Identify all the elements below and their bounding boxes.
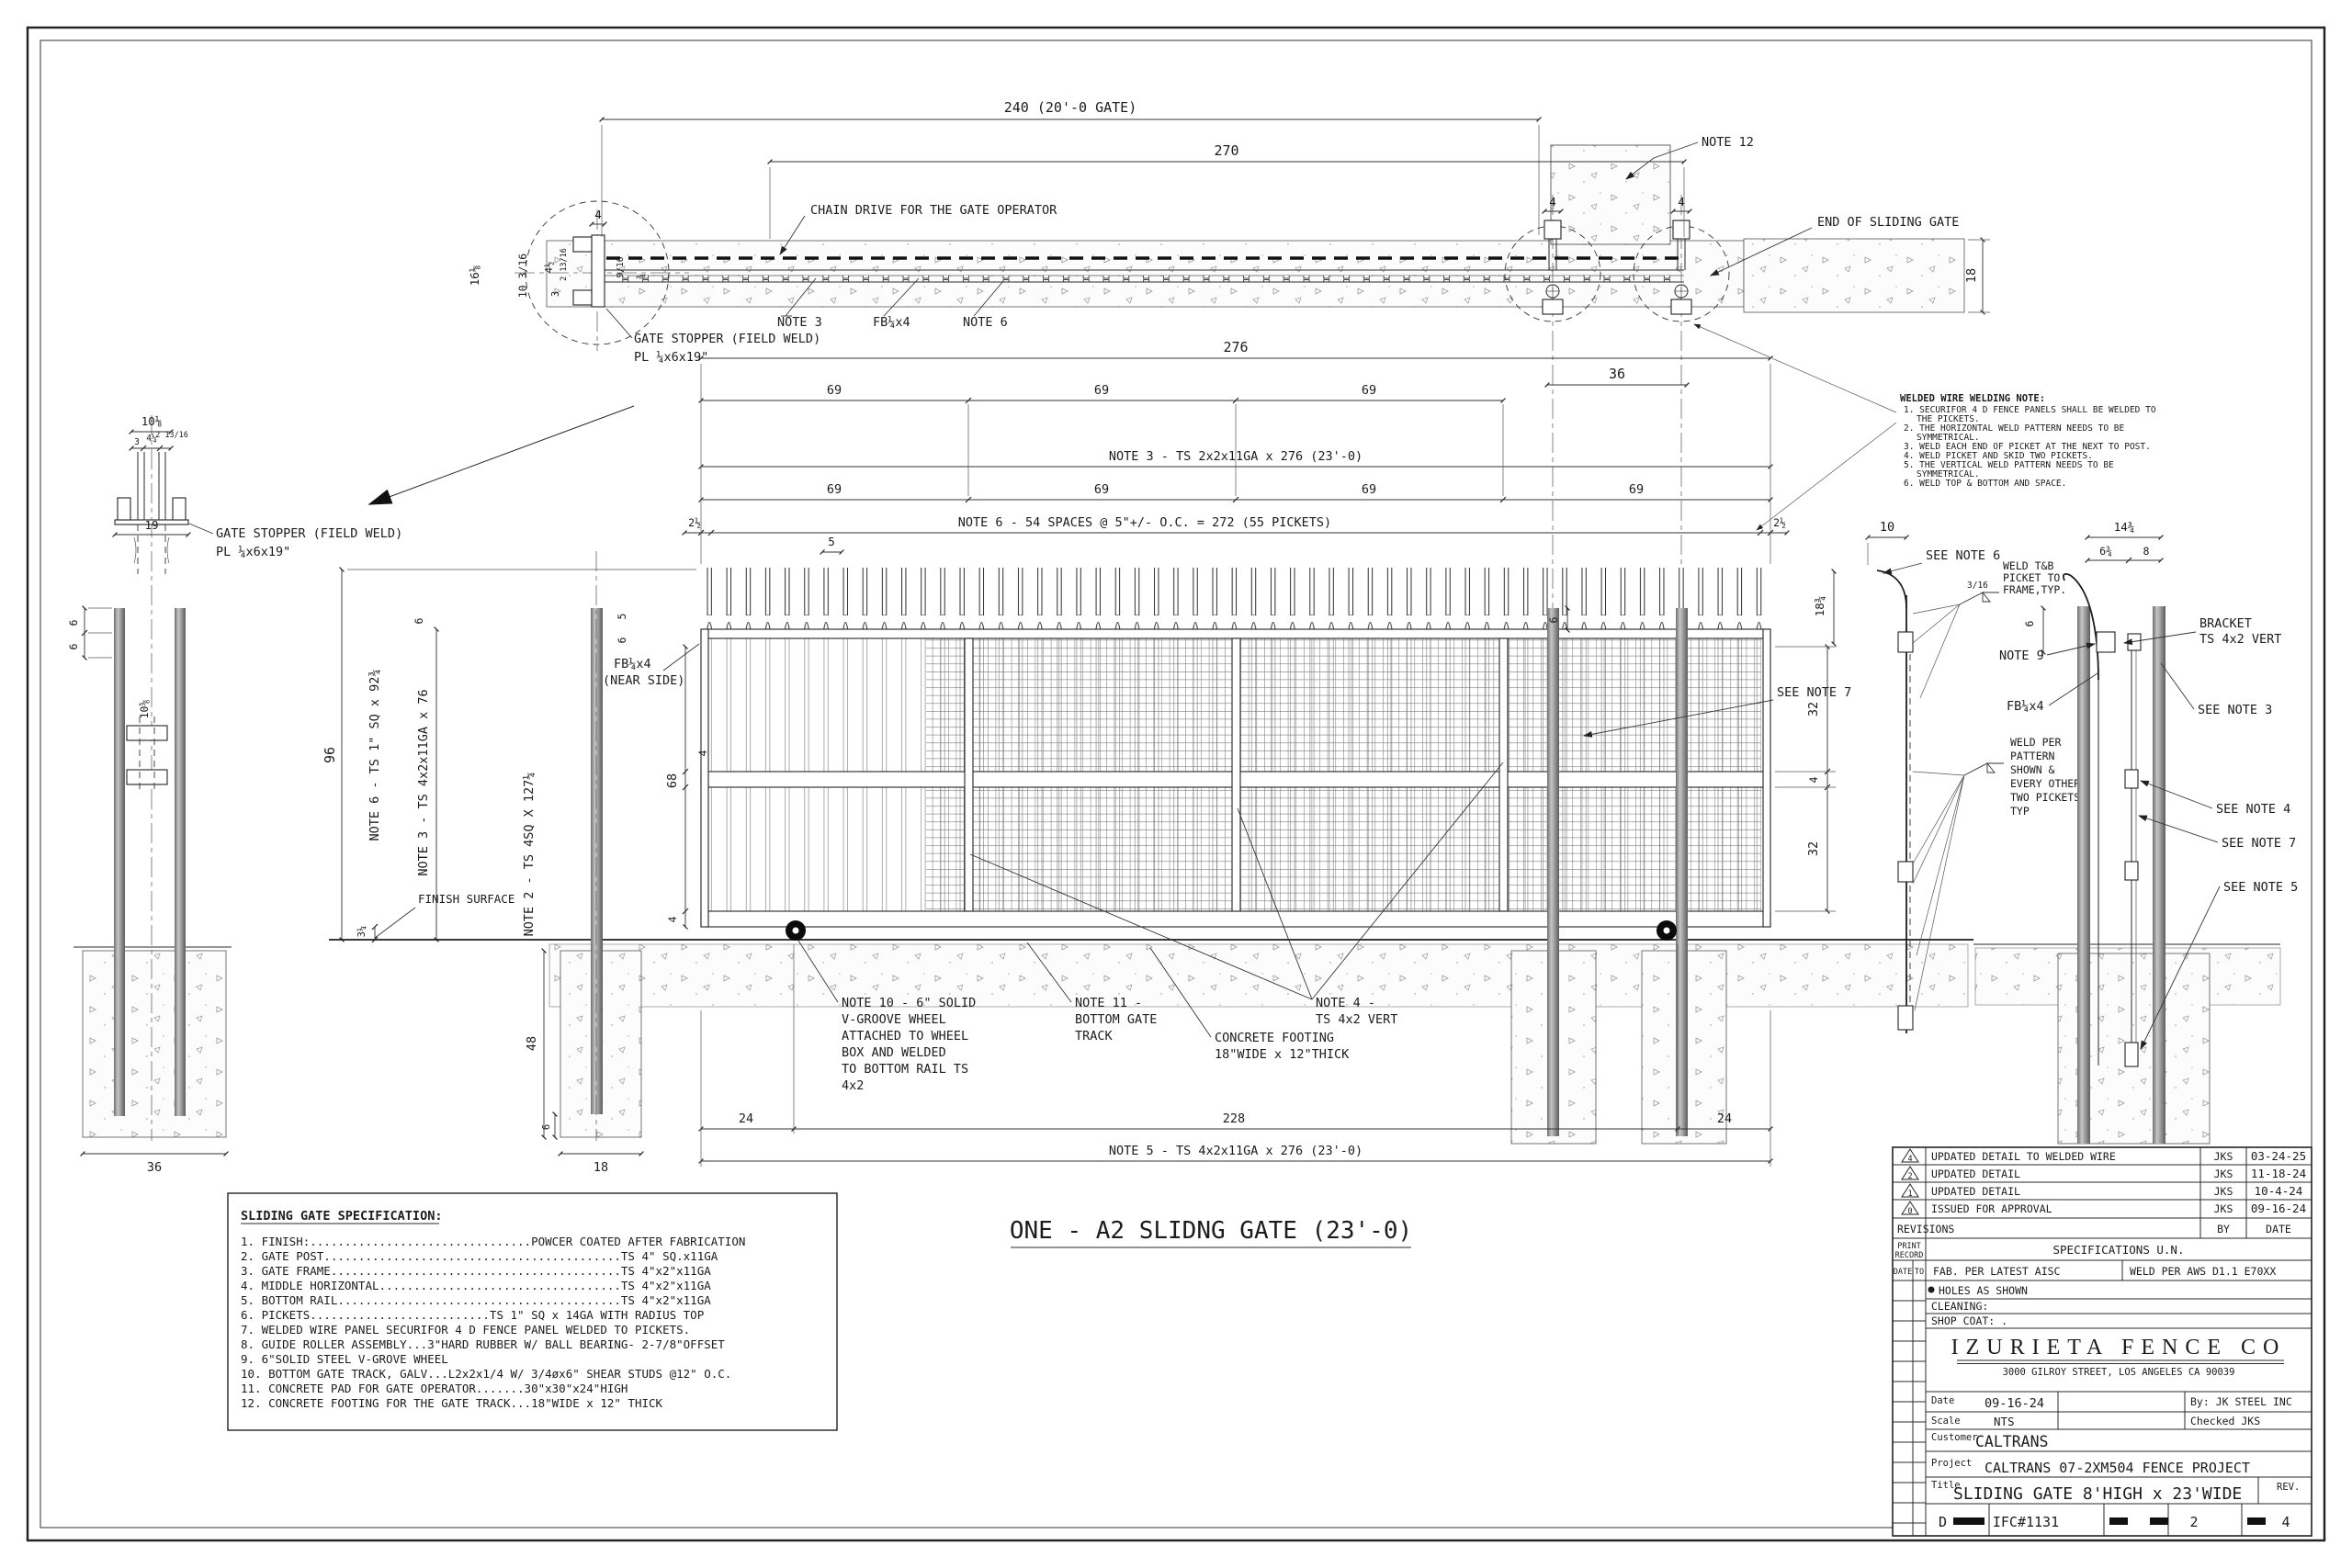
dim-69-b: 69 — [1094, 383, 1109, 398]
svg-text:PATTERN: PATTERN — [2010, 750, 2055, 762]
plan-concrete-band-right — [1744, 239, 1964, 312]
label-note-6-plan: NOTE 6 — [963, 315, 1008, 330]
dim-6-topleft: 6 — [413, 617, 425, 624]
svg-text:11-18-24: 11-18-24 — [2251, 1167, 2306, 1180]
svg-text:11. CONCRETE PAD FOR GATE OPER: 11. CONCRETE PAD FOR GATE OPERATOR......… — [241, 1382, 628, 1395]
svg-text:PICKET TO: PICKET TO — [2003, 571, 2060, 584]
svg-text:4x2: 4x2 — [842, 1078, 864, 1093]
dim-96: 96 — [322, 747, 338, 763]
svg-text:JKS: JKS — [2214, 1202, 2233, 1215]
checked-field: Checked JKS — [2190, 1415, 2260, 1427]
svg-text:1: 1 — [1907, 1190, 1912, 1199]
print-label: PRINT — [1897, 1242, 1921, 1251]
ts-vertical-3 — [1499, 638, 1508, 911]
svg-text:NOTE 11 -: NOTE 11 - — [1075, 996, 1142, 1010]
scale-field-label: Scale — [1931, 1416, 1961, 1427]
spec-title: SLIDING GATE SPECIFICATION: — [241, 1209, 442, 1224]
note6-picket-label: NOTE 6 - TS 1" SQ x 92¾ — [367, 670, 382, 841]
label-note-12: NOTE 12 — [1702, 135, 1754, 150]
svg-text:TWO PICKETS,: TWO PICKETS, — [2010, 791, 2086, 804]
track-footing-strip — [549, 944, 1968, 1007]
dim-6-detail2: 6 — [2023, 620, 2036, 626]
detail-post-2 — [2153, 606, 2165, 1144]
dim-2-13-16-plan: 2 13/16 — [560, 248, 569, 281]
see-note7-elevation: SEE NOTE 7 — [1777, 685, 1851, 700]
dim-36-footing: 36 — [147, 1160, 162, 1175]
dim-69-a: 69 — [827, 383, 842, 398]
svg-text:4: 4 — [1907, 1155, 1912, 1164]
dim-6-posts-a: 6 — [67, 619, 80, 626]
plan-view: 240 (20'-0 GATE) 270 CHAIN DRIVE FOR THE… — [468, 99, 1990, 614]
svg-text:JKS: JKS — [2214, 1168, 2233, 1180]
specification-block: SLIDING GATE SPECIFICATION: 1. FINISH:..… — [228, 1193, 837, 1430]
shear-studs — [617, 276, 1679, 282]
dim-9-16: 9/16 — [616, 256, 626, 277]
picket-spikes — [701, 568, 1770, 629]
svg-text:UPDATED DETAIL: UPDATED DETAIL — [1931, 1185, 2020, 1198]
rev-field-label: REV. — [2277, 1482, 2300, 1493]
weld-tb-label: WELD T&B PICKET TO FRAME,TYP. — [2003, 559, 2066, 596]
dim-6-spike: 6 — [1547, 616, 1560, 623]
dim-36: 36 — [1609, 366, 1625, 382]
see-note-5: SEE NOTE 5 — [2223, 880, 2298, 895]
label-chain-drive: CHAIN DRIVE FOR THE GATE OPERATOR — [810, 203, 1057, 218]
svg-text:UPDATED DETAIL: UPDATED DETAIL — [1931, 1168, 2020, 1180]
dim-48: 48 — [525, 1036, 539, 1051]
svg-text:5. BOTTOM RAIL................: 5. BOTTOM RAIL..........................… — [241, 1293, 711, 1307]
svg-text:V-GROOVE WHEEL: V-GROOVE WHEEL — [842, 1012, 946, 1027]
dim-18-3-4: 18¾ — [1813, 596, 1826, 617]
label-gate-stopper-2: PL ¼x6x19" — [634, 350, 708, 365]
dim-10-1-8: 10⅛ — [141, 414, 163, 428]
sheet-letter: D — [1939, 1514, 1947, 1530]
spec-heading: SPECIFICATIONS U.N. — [2053, 1243, 2185, 1257]
customer-field-value: CALTRANS — [1975, 1433, 2048, 1450]
drawing-canvas: 240 (20'-0 GATE) 270 CHAIN DRIVE FOR THE… — [0, 0, 2352, 1568]
dim-3-detail: 3 — [134, 437, 140, 447]
dim-32-upper: 32 — [1806, 702, 1821, 716]
welding-note-title: WELDED WIRE WELDING NOTE: — [1900, 393, 2045, 404]
svg-text:TRACK: TRACK — [1075, 1029, 1114, 1043]
see-note-6: SEE NOTE 6 — [1926, 548, 2000, 563]
drawing-number: IFC#1131 — [1993, 1514, 2059, 1530]
svg-text:WELD T&B: WELD T&B — [2003, 559, 2053, 572]
by-field-value: By: JK STEEL INC — [2190, 1395, 2292, 1408]
right-picket-details: 10 SEE NOTE 6 18¾ 3/16 WELD T&B PICKET T… — [1813, 520, 2298, 1144]
dim-6-footing: 6 — [541, 1124, 552, 1130]
col-to: TO — [1915, 1268, 1924, 1277]
svg-text:RECORD: RECORD — [1895, 1251, 1924, 1260]
label-gate-stopper-1: GATE STOPPER (FIELD WELD) — [634, 332, 820, 346]
svg-text:2. GATE POST..................: 2. GATE POST............................… — [241, 1249, 718, 1263]
dim-69-g: 69 — [1629, 482, 1644, 497]
dim-24-right: 24 — [1717, 1111, 1732, 1126]
svg-text:EVERY OTHER: EVERY OTHER — [2010, 777, 2080, 790]
detail-post-1 — [2077, 606, 2090, 1144]
date-label: DATE — [2266, 1223, 2291, 1235]
dim-4-stopper: 4 — [594, 208, 602, 221]
dim-4-bracket2: 4 — [1678, 195, 1685, 209]
label-end-of-gate: END OF SLIDING GATE — [1817, 215, 1959, 230]
dim-6-post: 6 — [616, 637, 628, 643]
svg-text:TS 4x2 VERT: TS 4x2 VERT — [2199, 632, 2281, 647]
svg-text:NOTE 10 - 6" SOLID: NOTE 10 - 6" SOLID — [842, 996, 976, 1010]
fb-detail2: FB¼x4 — [2007, 699, 2044, 714]
dim-19: 19 — [144, 518, 158, 532]
svg-text:BOX AND WELDED: BOX AND WELDED — [842, 1045, 946, 1060]
label-fb-plan: FB¼x4 — [873, 315, 910, 330]
svg-text:12. CONCRETE FOOTING FOR THE G: 12. CONCRETE FOOTING FOR THE GATE TRACK.… — [241, 1396, 663, 1410]
svg-text:6. PICKETS....................: 6. PICKETS..........................TS 1… — [241, 1308, 704, 1322]
stopper-detail-label-1: GATE STOPPER (FIELD WELD) — [216, 526, 402, 541]
svg-text:10-4-24: 10-4-24 — [2255, 1184, 2303, 1198]
ts-vertical-2 — [1232, 638, 1240, 911]
dim-10: 10 — [1880, 520, 1894, 535]
dim-18-plan: 18 — [1964, 268, 1979, 283]
stopper-detail-label-2: PL ¼x6x19" — [216, 545, 290, 559]
svg-text:9. 6"SOLID STEEL V-GROVE WHEEL: 9. 6"SOLID STEEL V-GROVE WHEEL — [241, 1352, 448, 1366]
dim-240: 240 (20'-0 GATE) — [1004, 99, 1137, 116]
svg-text:6. WELD TOP & BOTTOM AND SPACE: 6. WELD TOP & BOTTOM AND SPACE. — [1904, 479, 2066, 489]
dim-228: 228 — [1223, 1111, 1245, 1126]
svg-text:4. MIDDLE HORIZONTAL..........: 4. MIDDLE HORIZONTAL....................… — [241, 1279, 711, 1292]
by-label: BY — [2217, 1223, 2230, 1235]
svg-text:ATTACHED TO WHEEL: ATTACHED TO WHEEL — [842, 1029, 968, 1043]
dim-4-midrail: 4 — [696, 750, 709, 756]
svg-text:FRAME,TYP.: FRAME,TYP. — [2003, 583, 2066, 596]
gate-post — [591, 608, 603, 1114]
welded-wire-mesh-lower — [926, 787, 1761, 911]
dim-3-quarter: 3¼ — [356, 926, 367, 938]
gate-dimension-rows: 276 36 69 69 69 NOTE 3 - TS 2x2x11GA x 2… — [684, 339, 1787, 564]
stopper-pointer-arrow — [369, 406, 634, 504]
see-note-3: SEE NOTE 3 — [2198, 703, 2272, 717]
dim-3-4: ¾ — [636, 274, 647, 279]
top-rail — [701, 629, 1770, 638]
stopper-plate-plan — [592, 235, 605, 307]
svg-text:WELD PER: WELD PER — [2010, 736, 2061, 749]
stopper-post-1 — [114, 608, 125, 1116]
sheet-total: 4 — [2281, 1514, 2290, 1530]
svg-text:3. GATE FRAME.................: 3. GATE FRAME...........................… — [241, 1264, 711, 1278]
note-9: NOTE 9 — [1999, 649, 2044, 663]
svg-text:JKS: JKS — [2214, 1150, 2233, 1163]
drawing-sheet: 240 (20'-0 GATE) 270 CHAIN DRIVE FOR THE… — [0, 0, 2352, 1568]
svg-text:2: 2 — [1907, 1172, 1912, 1181]
svg-text:CONCRETE FOOTING: CONCRETE FOOTING — [1215, 1031, 1334, 1045]
dim-10-3-16: 10 3/16 — [516, 254, 529, 299]
svg-text:09-16-24: 09-16-24 — [2251, 1201, 2306, 1215]
dim-4-1-2: 4½ — [544, 262, 555, 274]
dim-5-post: 5 — [616, 614, 628, 620]
dim-276: 276 — [1223, 339, 1248, 355]
dim-68: 68 — [665, 773, 680, 788]
dim-69-c: 69 — [1362, 383, 1376, 398]
svg-text:NOTE 4 -: NOTE 4 - — [1316, 996, 1375, 1010]
note10-label: NOTE 10 - 6" SOLID V-GROOVE WHEEL ATTACH… — [842, 996, 976, 1093]
welded-wire-welding-note: WELDED WIRE WELDING NOTE: 1. SECURIFOR 4… — [1694, 324, 2156, 530]
svg-text:TS 4x2 VERT: TS 4x2 VERT — [1316, 1012, 1397, 1027]
project-field-label: Project — [1931, 1458, 1972, 1469]
weld-pattern-label: WELD PER PATTERN SHOWN & EVERY OTHER TWO… — [2010, 736, 2086, 818]
note2-post-label: NOTE 2 - TS 4SQ X 127¼ — [522, 773, 537, 937]
fb-near-side-1: FB¼x4 — [614, 657, 651, 671]
col-date: DATE — [1894, 1268, 1912, 1277]
see-note-4: SEE NOTE 4 — [2216, 802, 2290, 817]
sheet-number: 2 — [2189, 1514, 2198, 1530]
date-field-label: Date — [1931, 1395, 1954, 1406]
svg-text:JKS: JKS — [2214, 1185, 2233, 1198]
fb-near-side-2: (NEAR SIDE) — [603, 673, 684, 688]
ts-vertical-1 — [965, 638, 973, 911]
dim-16-1-8: 16⅛ — [468, 265, 481, 287]
holes-note: HOLES AS SHOWN — [1939, 1284, 2028, 1297]
svg-text:TYP: TYP — [2010, 805, 2030, 818]
dim-32-lower: 32 — [1806, 841, 1821, 856]
concrete-footing-label: CONCRETE FOOTING 18"WIDE x 12"THICK — [1215, 1031, 1350, 1062]
caption-text: ONE - A2 SLIDNG GATE (23'-0) — [1010, 1217, 1412, 1245]
dim-5-spacing: 5 — [828, 535, 835, 548]
fab-note: FAB. PER LATEST AISC — [1933, 1265, 2061, 1278]
label-note-3-plan: NOTE 3 — [777, 315, 822, 330]
see-note-7-detail: SEE NOTE 7 — [2222, 836, 2296, 851]
dim-4-bottomrail: 4 — [666, 916, 679, 922]
customer-field-label: Customer — [1931, 1432, 1978, 1443]
dim-69-f: 69 — [1362, 482, 1376, 497]
weld-note: WELD PER AWS D1.1 E70XX — [2130, 1265, 2276, 1278]
project-field-value: CALTRANS 07-2XM504 FENCE PROJECT — [1984, 1460, 2250, 1476]
note5-member: NOTE 5 - TS 4x2x11GA x 276 (23'-0) — [1109, 1144, 1363, 1158]
title-block: 4 UPDATED DETAIL TO WELDED WIRE JKS 03-2… — [1893, 1147, 2312, 1536]
dim-69-d: 69 — [827, 482, 842, 497]
svg-text:1. FINISH:....................: 1. FINISH:..............................… — [241, 1235, 745, 1248]
plan-concrete-band — [547, 241, 1744, 307]
dim-18-footing: 18 — [594, 1160, 608, 1175]
svg-text:7. WELDED WIRE PANEL SECURIFOR: 7. WELDED WIRE PANEL SECURIFOR 4 D FENCE… — [241, 1323, 690, 1337]
footing-left-detail — [83, 951, 226, 1137]
svg-text:TO BOTTOM RAIL TS: TO BOTTOM RAIL TS — [842, 1062, 968, 1077]
company-name: IZURIETA FENCE CO — [1951, 1336, 2287, 1359]
svg-text:BRACKET: BRACKET — [2199, 616, 2252, 631]
stopper-post-2 — [175, 608, 186, 1116]
gate-stopper-detail: 10⅛ 3 4¼ 2 13/16 19 GATE STOPPER (FIELD … — [67, 406, 634, 718]
dim-8: 8 — [2143, 545, 2150, 558]
dim-3-plan: 3 — [550, 291, 561, 297]
scale-field-value: NTS — [1994, 1415, 2015, 1428]
dim-6-posts-b: 6 — [67, 643, 80, 649]
svg-text:18"WIDE x 12"THICK: 18"WIDE x 12"THICK — [1215, 1047, 1350, 1062]
guide-post-1 — [1547, 608, 1559, 1136]
svg-text:BOTTOM GATE: BOTTOM GATE — [1075, 1012, 1157, 1027]
dim-24-left: 24 — [739, 1111, 753, 1126]
svg-text:03-24-25: 03-24-25 — [2251, 1149, 2306, 1163]
title-field-value: SLIDING GATE 8'HIGH x 23'WIDE — [1953, 1484, 2242, 1504]
svg-text:8. GUIDE ROLLER ASSEMBLY...3"H: 8. GUIDE ROLLER ASSEMBLY...3"HARD RUBBER… — [241, 1337, 725, 1351]
revisions-label: REVISIONS — [1897, 1223, 1954, 1235]
note3-frame-label: NOTE 3 - TS 4x2x11GA x 76 — [416, 689, 431, 875]
svg-text:SHOWN &: SHOWN & — [2010, 763, 2055, 776]
svg-text:10. BOTTOM GATE TRACK, GALV...: 10. BOTTOM GATE TRACK, GALV...L2x2x1/4 W… — [241, 1367, 731, 1381]
date-field-value: 09-16-24 — [1984, 1396, 2044, 1411]
note6-spacing: NOTE 6 - 54 SPACES @ 5"+/- O.C. = 272 (5… — [958, 515, 1331, 530]
dim-10-5-8: 10⅝ — [138, 700, 151, 719]
dim-2half-left: 2½ — [688, 516, 701, 529]
bracket-label: BRACKET TS 4x2 VERT — [2199, 616, 2281, 647]
cleaning-label: CLEANING: — [1931, 1300, 1988, 1313]
dim-2-13-16-detail: 2 13/16 — [155, 431, 188, 440]
svg-text:UPDATED DETAIL TO WELDED WIRE: UPDATED DETAIL TO WELDED WIRE — [1931, 1150, 2116, 1163]
dim-2half-right: 2½ — [1773, 516, 1786, 529]
dim-4-bracket1: 4 — [1549, 195, 1556, 209]
dim-270: 270 — [1214, 142, 1238, 159]
company-address: 3000 GILROY STREET, LOS ANGELES CA 90039 — [2003, 1367, 2235, 1378]
svg-text:ISSUED FOR APPROVAL: ISSUED FOR APPROVAL — [1931, 1202, 2052, 1215]
dim-6-3-4: 6¾ — [2099, 545, 2112, 558]
operator-pad — [1551, 145, 1670, 244]
dim-69-e: 69 — [1094, 482, 1109, 497]
shop-coat-label: SHOP COAT: . — [1931, 1314, 2007, 1327]
welded-wire-mesh-upper — [926, 638, 1761, 772]
bottom-rail — [701, 911, 1770, 927]
finish-surface-label: FINISH SURFACE — [418, 892, 514, 906]
dim-4-right: 4 — [1807, 776, 1820, 783]
svg-text:0: 0 — [1907, 1207, 1912, 1216]
view-caption: ONE - A2 SLIDNG GATE (23'-0) — [1010, 1217, 1412, 1247]
dim-14-3-4: 14¾ — [2114, 520, 2135, 534]
weld-3-16: 3/16 — [1967, 581, 1988, 591]
